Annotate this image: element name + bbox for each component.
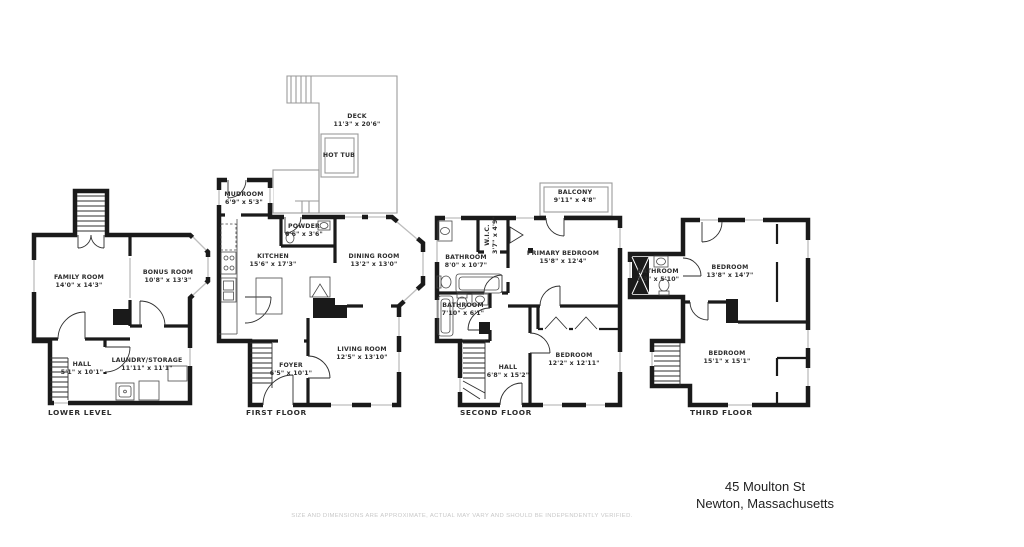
room-label-primary-bedroom: PRIMARY BEDROOM 15'8" x 12'4"	[527, 250, 599, 266]
second-chase	[479, 322, 490, 334]
floor-title-lower-level: LOWER LEVEL	[48, 408, 112, 417]
fireplace	[313, 298, 347, 318]
stove	[221, 252, 236, 274]
wic-door-marker	[510, 227, 523, 243]
third-floor-plan	[630, 220, 808, 405]
address-line-1: 45 Moulton St	[640, 478, 890, 495]
first-floor-plan	[219, 76, 423, 405]
room-label-living-room: LIVING ROOM 12'5" x 13'10"	[336, 346, 387, 362]
room-label-balcony: BALCONY 9'11" x 4'8"	[554, 189, 596, 205]
room-label-second-hall: HALL 6'8" x 15'2"	[487, 364, 529, 380]
address-line-2: Newton, Massachusetts	[640, 495, 890, 512]
floor-title-second-floor: SECOND FLOOR	[460, 408, 532, 417]
property-address: 45 Moulton St Newton, Massachusetts	[640, 478, 890, 512]
foyer-stairs	[250, 343, 272, 388]
room-label-third-bathroom: BATHROOM 7'3" x 5'10"	[637, 268, 679, 284]
lower-chimney	[113, 309, 129, 325]
third-stairs	[654, 343, 680, 386]
room-label-bonus-room: BONUS ROOM 10'8" x 13'3"	[143, 269, 193, 285]
fridge	[221, 224, 236, 250]
room-label-bathroom-1: BATHROOM 8'0" x 10'7"	[445, 254, 487, 270]
room-label-foyer: FOYER 6'5" x 10'1"	[270, 362, 312, 378]
deck-outline	[273, 76, 397, 213]
room-label-deck: DECK 11'3" x 20'6"	[334, 113, 381, 129]
floor-title-third-floor: THIRD FLOOR	[690, 408, 753, 417]
room-label-third-bedroom-1: BEDROOM 13'8" x 14'7"	[707, 264, 754, 280]
closet-bifold-doors	[545, 317, 597, 329]
room-label-third-bedroom-2: BEDROOM 15'1" x 15'1"	[704, 350, 751, 366]
room-label-powder: POWDER 6'6" x 3'6"	[285, 223, 323, 239]
room-label-laundry-storage: LAUNDRY/STORAGE 11'11" x 11'1"	[112, 357, 183, 373]
room-label-second-bedroom: BEDROOM 12'2" x 12'11"	[548, 352, 599, 368]
room-label-hot-tub: HOT TUB	[323, 152, 355, 160]
room-label-family-room: FAMILY ROOM 14'0" x 14'3"	[54, 274, 104, 290]
room-label-lower-hall: HALL 5'1" x 10'1"	[61, 361, 103, 377]
room-label-dining-room: DINING ROOM 13'2" x 13'0"	[349, 253, 400, 269]
disclaimer-text: SIZE AND DIMENSIONS ARE APPROXIMATE, ACT…	[260, 513, 664, 519]
kitchen-island	[256, 278, 282, 314]
floorplan-page: FAMILY ROOM 14'0" x 14'3" BONUS ROOM 10'…	[0, 0, 1024, 547]
room-label-mudroom: MUDROOM 6'9" x 5'3"	[224, 191, 263, 207]
lower-stairs-up	[77, 196, 105, 231]
room-label-bathroom-2: BATHROOM 7'10" x 6'1"	[442, 302, 484, 318]
lower-door-arcs	[58, 235, 165, 372]
second-stairs	[463, 340, 485, 399]
third-chimney	[726, 299, 738, 323]
room-label-wic: W.I.C. 3'7" x 4'9"	[484, 216, 500, 254]
pantry-closet	[310, 277, 330, 297]
room-label-kitchen: KITCHEN 15'6" x 17'3"	[250, 253, 297, 269]
floor-title-first-floor: FIRST FLOOR	[246, 408, 307, 417]
deck-landing	[273, 170, 319, 213]
